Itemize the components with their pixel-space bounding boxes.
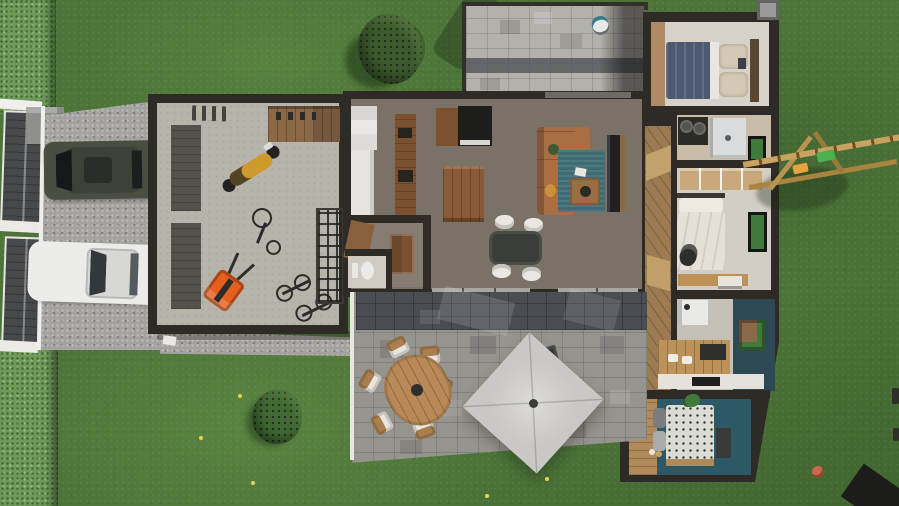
pergola-paver-block-2 bbox=[560, 34, 582, 48]
bicycle-wheel-2 bbox=[266, 240, 281, 255]
chimney bbox=[757, 0, 779, 20]
suv-windshield bbox=[56, 150, 73, 192]
bed3-duvet bbox=[666, 405, 714, 461]
pergola-paver-block-3 bbox=[480, 78, 500, 90]
vanity-niche bbox=[700, 344, 726, 360]
entry-wardrobe bbox=[390, 234, 414, 274]
suv-car bbox=[43, 140, 162, 203]
washing-machine bbox=[678, 300, 708, 325]
wc-wall-top bbox=[345, 249, 392, 256]
outdoor-table-bowl bbox=[411, 384, 423, 396]
fence-post-stub bbox=[893, 428, 899, 441]
gate-rail-bottom bbox=[0, 340, 38, 353]
flower bbox=[199, 436, 203, 440]
doormat bbox=[162, 335, 176, 346]
dining-chair bbox=[495, 215, 514, 229]
washer-dial bbox=[684, 304, 690, 310]
vanity-towel bbox=[668, 354, 678, 362]
garage-door-panel-1 bbox=[171, 125, 201, 211]
bed1-duvet bbox=[666, 42, 712, 99]
motorcycle-body bbox=[227, 151, 275, 189]
flower bbox=[485, 494, 489, 498]
desk-drawer bbox=[718, 276, 742, 289]
bathroom1-sink bbox=[695, 124, 704, 133]
kitchen-sink-dark bbox=[398, 170, 413, 182]
wing-wall-3 bbox=[673, 290, 775, 299]
terrace-block-light bbox=[610, 390, 630, 404]
dining-chair bbox=[492, 264, 511, 278]
bed2-pillow bbox=[679, 198, 723, 213]
bed1-sheet bbox=[710, 42, 719, 99]
terrace-block bbox=[600, 336, 624, 354]
suv-rear-window bbox=[132, 150, 143, 188]
storage-shelf bbox=[316, 208, 344, 304]
coffee-table-tray bbox=[580, 186, 591, 197]
orange-ball bbox=[812, 466, 824, 478]
kitchen-fridge bbox=[351, 106, 377, 150]
hallway-open-door-2 bbox=[647, 255, 670, 292]
wc-wall-right bbox=[386, 249, 392, 289]
suv-sunroof bbox=[84, 157, 112, 183]
bedroom1-wood-strip bbox=[651, 22, 665, 106]
shower-drain bbox=[725, 135, 731, 141]
terrace-block bbox=[400, 440, 422, 454]
workbench-tools bbox=[276, 112, 316, 120]
teal-wall-art bbox=[739, 320, 765, 350]
gate-rail-mid bbox=[0, 220, 40, 233]
bed1-dark-item bbox=[738, 58, 746, 69]
sedan-rear-window bbox=[129, 253, 138, 295]
flower bbox=[545, 477, 549, 481]
small-bush bbox=[252, 390, 302, 444]
bed3-pillow bbox=[653, 408, 666, 428]
garage-floor-marks bbox=[192, 105, 231, 121]
kitchen-counter-left bbox=[351, 150, 374, 218]
terrace-block-light bbox=[420, 310, 440, 324]
toilet-bowl bbox=[358, 261, 374, 280]
wall-entry-v bbox=[423, 215, 431, 290]
bathroom1-sink bbox=[682, 122, 691, 131]
sedan-car bbox=[27, 241, 165, 309]
big-tree bbox=[358, 14, 422, 84]
bed3-toys bbox=[649, 448, 663, 458]
parasol-pole-top bbox=[529, 399, 538, 408]
bed1-headboard bbox=[750, 39, 759, 102]
flower bbox=[238, 394, 242, 398]
rug-white-item bbox=[574, 167, 586, 177]
terrace-curb bbox=[350, 292, 354, 460]
tv-console bbox=[607, 135, 625, 212]
kitchen-small-appliance bbox=[398, 128, 412, 138]
floor-plan-scene bbox=[0, 0, 899, 506]
kitchen-wood-band bbox=[436, 108, 458, 146]
range-handle bbox=[460, 140, 490, 145]
bath-sink-dark bbox=[692, 377, 720, 386]
wall-art-green-2 bbox=[748, 212, 767, 252]
dining-table bbox=[489, 231, 542, 265]
driveway-gravel bbox=[40, 98, 165, 350]
kitchen-island bbox=[443, 166, 484, 222]
garage-door-panel-2 bbox=[171, 223, 201, 309]
pergola-paver-block-4 bbox=[534, 12, 552, 24]
wing-wall-1 bbox=[651, 106, 769, 115]
bed1-pillow bbox=[719, 72, 748, 97]
sofa-pillow-tan bbox=[545, 184, 556, 197]
flower bbox=[251, 481, 255, 485]
pergola-paver-block-1 bbox=[500, 20, 520, 34]
terrace-block bbox=[470, 336, 496, 354]
dining-chair bbox=[524, 218, 543, 232]
wing-wall-4 bbox=[645, 390, 770, 399]
bed3-bench bbox=[716, 428, 731, 458]
hedge-bottom bbox=[0, 336, 58, 506]
window-strip-top bbox=[545, 92, 631, 98]
vanity-towel bbox=[682, 356, 692, 364]
fence-post-stub bbox=[892, 388, 899, 404]
dining-chair bbox=[522, 267, 541, 281]
sedan-windshield bbox=[89, 250, 107, 297]
bed3-frame-wood bbox=[666, 459, 714, 466]
bathroom1-vanity bbox=[678, 117, 708, 145]
